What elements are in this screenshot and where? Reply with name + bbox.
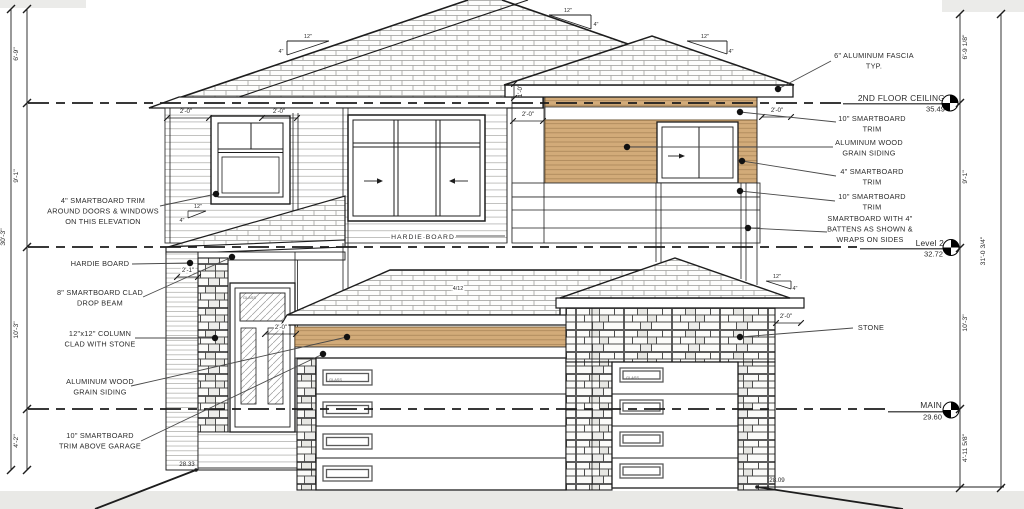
garage-right-glass-label: GLASS (626, 375, 639, 380)
garage-left-fascia (281, 315, 572, 325)
svg-text:MAIN: MAIN (920, 400, 942, 410)
svg-text:12"x12" COLUMN: 12"x12" COLUMN (69, 329, 131, 338)
garage-roof-slope-label: 4/12 (453, 286, 464, 292)
trim-band-above-garage (295, 347, 568, 358)
dim-garage-right-overhang: 2'-0" (774, 313, 804, 326)
svg-text:HARDIE BOARD: HARDIE BOARD (71, 259, 130, 268)
door-glass-label: GLASS (243, 295, 256, 300)
svg-text:SMARTBOARD WITH 4": SMARTBOARD WITH 4" (827, 214, 912, 223)
porch-base (198, 432, 297, 468)
svg-text:6'-9": 6'-9" (13, 47, 20, 61)
batten-wall (512, 197, 760, 243)
dim-wing-junction: 2'-0" (511, 111, 546, 124)
right-wing-fascia (505, 85, 793, 97)
trim-band-lower (512, 183, 760, 197)
elevation-drawing: HARDIE BOARD GLASS (0, 0, 1024, 509)
svg-text:10'-3": 10'-3" (13, 321, 20, 339)
page-edge-topright (942, 0, 1024, 12)
svg-text:TRIM: TRIM (863, 178, 882, 187)
svg-text:WRAPS ON SIDES: WRAPS ON SIDES (836, 235, 903, 244)
stone-pier-right (738, 362, 775, 490)
garage-door-right: GLASS (612, 362, 738, 488)
svg-text:2'-0": 2'-0" (522, 111, 534, 118)
main-level-label: MAIN 29.60 (888, 400, 959, 422)
svg-text:4": 4" (180, 218, 185, 224)
window-center (348, 115, 485, 221)
svg-text:6'-9 1/8": 6'-9 1/8" (962, 34, 969, 59)
svg-text:8" SMARTBOARD CLAD: 8" SMARTBOARD CLAD (57, 288, 143, 297)
svg-text:4'-2": 4'-2" (13, 434, 20, 448)
svg-text:4" SMARTBOARD TRIM: 4" SMARTBOARD TRIM (61, 196, 145, 205)
svg-text:12": 12" (773, 274, 781, 280)
svg-text:GRAIN SIDING: GRAIN SIDING (73, 388, 126, 397)
svg-text:ALUMINUM WOOD: ALUMINUM WOOD (835, 138, 903, 147)
svg-text:DROP BEAM: DROP BEAM (77, 299, 123, 308)
garage-left-glass-label: GLASS (329, 377, 342, 382)
svg-text:4'-11 5/8": 4'-11 5/8" (962, 433, 969, 462)
wood-band-above-garage (295, 327, 568, 347)
level-marker-icon (943, 240, 959, 256)
grade-elevation-left: 28.33 (179, 461, 195, 468)
ground-strip (0, 491, 1024, 509)
svg-text:TRIM: TRIM (863, 203, 882, 212)
svg-text:12": 12" (304, 34, 312, 40)
svg-text:TYP.: TYP. (866, 62, 882, 71)
svg-text:2ND FLOOR CEILING: 2ND FLOOR CEILING (858, 93, 945, 103)
trim-band-upper (545, 107, 757, 120)
grade-elevation-right: 28.09 (769, 477, 785, 484)
dim-lines-left (7, 5, 31, 474)
svg-text:32.72: 32.72 (924, 250, 943, 259)
svg-text:AROUND DOORS & WINDOWS: AROUND DOORS & WINDOWS (47, 207, 159, 216)
level-marker-icon (943, 402, 959, 418)
wood-frieze-band (545, 97, 757, 107)
svg-text:2'-0": 2'-0" (275, 324, 287, 331)
window-upper-left (211, 116, 290, 204)
svg-text:10" SMARTBOARD: 10" SMARTBOARD (838, 114, 906, 123)
svg-text:6" ALUMINUM FASCIA: 6" ALUMINUM FASCIA (834, 51, 914, 60)
svg-text:Level 2: Level 2 (916, 238, 945, 248)
svg-text:2'-1": 2'-1" (182, 267, 194, 274)
stone-column (198, 258, 228, 432)
svg-text:4": 4" (793, 286, 798, 292)
svg-text:STONE: STONE (858, 323, 884, 332)
svg-text:4": 4" (279, 49, 284, 55)
garage-right: GLASS (556, 258, 804, 490)
svg-text:12": 12" (701, 34, 709, 40)
svg-text:2'-0": 2'-0" (780, 313, 792, 320)
dim-wing-overhang: 2'-0" (760, 107, 794, 120)
door-glass-panel-right (268, 328, 283, 404)
svg-text:4" SMARTBOARD: 4" SMARTBOARD (840, 167, 903, 176)
level-marker-icon (942, 95, 958, 111)
svg-text:9'-1": 9'-1" (13, 169, 20, 183)
hardie-board-label: HARDIE BOARD (391, 234, 455, 241)
svg-text:31'-0 3/4": 31'-0 3/4" (980, 236, 987, 265)
svg-text:10'-3": 10'-3" (962, 314, 969, 332)
stone-pier-middle (566, 362, 612, 490)
svg-text:CLAD WITH STONE: CLAD WITH STONE (65, 340, 136, 349)
svg-text:9'-1": 9'-1" (962, 170, 969, 184)
second-floor-right (512, 97, 760, 285)
svg-text:1'-0": 1'-0" (517, 85, 524, 97)
svg-text:12": 12" (194, 204, 202, 210)
stone-wall-top (566, 308, 775, 362)
svg-text:29.60: 29.60 (923, 413, 942, 422)
ceiling-level-label: 2ND FLOOR CEILING 35.49 (843, 93, 958, 114)
svg-text:GRAIN SIDING: GRAIN SIDING (842, 149, 895, 158)
svg-text:2'-0": 2'-0" (180, 108, 192, 115)
slope-garage-right: 12" 4" (766, 274, 798, 292)
svg-text:2'-0": 2'-0" (273, 108, 285, 115)
svg-text:2'-0": 2'-0" (771, 107, 783, 114)
svg-text:ALUMINUM WOOD: ALUMINUM WOOD (66, 377, 134, 386)
svg-text:TRIM: TRIM (863, 125, 882, 134)
svg-text:30'-3": 30'-3" (0, 228, 7, 246)
window-upper-right (657, 122, 738, 183)
garage-door-left: GLASS (316, 358, 566, 490)
svg-text:10" SMARTBOARD: 10" SMARTBOARD (838, 192, 906, 201)
svg-text:4": 4" (729, 49, 734, 55)
svg-text:12": 12" (564, 8, 572, 14)
svg-text:10" SMARTBOARD: 10" SMARTBOARD (66, 431, 134, 440)
svg-text:BATTENS AS SHOWN &: BATTENS AS SHOWN & (827, 225, 913, 234)
svg-text:ON THIS ELEVATION: ON THIS ELEVATION (65, 217, 141, 226)
callout-labels-left: 4" SMARTBOARD TRIM AROUND DOORS & WINDOW… (47, 196, 159, 451)
garage-right-fascia (556, 298, 804, 308)
svg-text:TRIM ABOVE GARAGE: TRIM ABOVE GARAGE (59, 442, 141, 451)
svg-text:4": 4" (594, 22, 599, 28)
